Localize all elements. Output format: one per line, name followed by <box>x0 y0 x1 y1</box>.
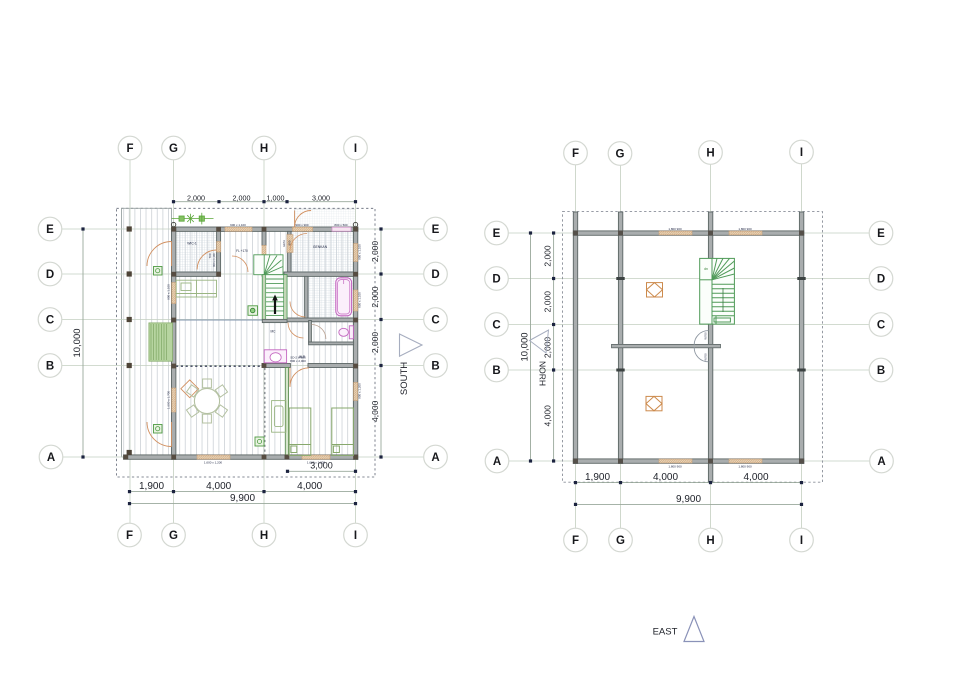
svg-text:2,000: 2,000 <box>233 194 251 203</box>
svg-text:900: 900 <box>287 240 291 245</box>
svg-text:2,000: 2,000 <box>187 194 205 203</box>
svg-text:1,800 900: 1,800 900 <box>668 227 682 231</box>
svg-text:I: I <box>800 147 803 159</box>
svg-text:E: E <box>432 224 440 236</box>
svg-text:I: I <box>354 530 357 542</box>
svg-text:GENKAN: GENKAN <box>313 245 328 249</box>
svg-text:G: G <box>169 143 178 155</box>
svg-text:D: D <box>492 274 500 286</box>
svg-text:4,000: 4,000 <box>653 472 678 483</box>
svg-text:900 x 1,100: 900 x 1,100 <box>212 253 216 267</box>
svg-text:G: G <box>169 530 178 542</box>
svg-text:900 x 1,100: 900 x 1,100 <box>358 244 362 260</box>
svg-text:H: H <box>706 148 714 160</box>
svg-text:1,000: 1,000 <box>267 194 285 203</box>
svg-text:NORH: NORH <box>538 361 548 386</box>
svg-text:C: C <box>431 315 439 327</box>
svg-text:800 x 1,100: 800 x 1,100 <box>358 292 362 308</box>
svg-text:1,600 x 1,700: 1,600 x 1,700 <box>166 391 170 410</box>
svg-text:C: C <box>46 315 54 327</box>
svg-text:EAST: EAST <box>653 627 678 638</box>
svg-text:1,800 900: 1,800 900 <box>738 464 752 468</box>
svg-text:C: C <box>877 320 885 332</box>
svg-text:H: H <box>260 143 268 155</box>
svg-text:FL +170: FL +170 <box>236 249 248 253</box>
svg-text:I: I <box>354 143 357 155</box>
svg-text:MC: MC <box>271 330 277 334</box>
svg-text:E: E <box>46 224 54 236</box>
svg-text:E: E <box>493 228 501 240</box>
svg-text:1,900: 1,900 <box>139 481 164 492</box>
svg-text:F: F <box>572 535 579 547</box>
svg-text:4,000: 4,000 <box>542 405 552 427</box>
svg-text:I: I <box>800 535 803 547</box>
svg-text:3,000: 3,000 <box>312 194 330 203</box>
svg-text:4,000: 4,000 <box>206 481 231 492</box>
svg-text:G: G <box>616 535 625 547</box>
svg-text:F: F <box>126 143 133 155</box>
svg-text:800 x 2,000: 800 x 2,000 <box>290 359 306 363</box>
svg-text:B: B <box>877 365 885 377</box>
svg-text:B: B <box>431 361 439 373</box>
svg-text:1,800 900: 1,800 900 <box>738 227 752 231</box>
svg-text:F: F <box>572 148 579 160</box>
svg-text:A: A <box>431 452 439 464</box>
svg-text:900 x 1,100: 900 x 1,100 <box>230 223 246 227</box>
svg-text:D: D <box>877 274 885 286</box>
svg-text:10,000: 10,000 <box>519 332 530 361</box>
svg-text:1,800 900: 1,800 900 <box>668 464 682 468</box>
svg-text:W760: W760 <box>704 353 708 361</box>
svg-text:C: C <box>492 320 500 332</box>
svg-text:2,000: 2,000 <box>542 291 552 313</box>
svg-text:D: D <box>431 269 439 281</box>
svg-text:1,900: 1,900 <box>585 472 610 483</box>
svg-text:800 x 500: 800 x 500 <box>334 223 348 227</box>
svg-text:2,000: 2,000 <box>370 286 380 308</box>
svg-text:2,000: 2,000 <box>542 245 552 267</box>
svg-text:9,900: 9,900 <box>230 493 255 504</box>
svg-text:A: A <box>493 456 501 468</box>
svg-text:2,000: 2,000 <box>370 241 380 263</box>
svg-text:4,000: 4,000 <box>297 481 322 492</box>
svg-text:B: B <box>492 365 500 377</box>
svg-text:SOUTH: SOUTH <box>399 362 410 395</box>
svg-text:F: F <box>126 530 133 542</box>
svg-text:D: D <box>46 269 54 281</box>
svg-text:900 x 1,100: 900 x 1,100 <box>167 284 171 300</box>
svg-text:10,000: 10,000 <box>72 328 83 357</box>
svg-text:G: G <box>616 149 625 161</box>
svg-text:W760: W760 <box>704 332 708 340</box>
svg-text:3,000: 3,000 <box>310 461 333 471</box>
svg-text:900 x 900: 900 x 900 <box>295 223 309 227</box>
svg-text:E: E <box>877 228 885 240</box>
svg-text:700: 700 <box>208 253 212 258</box>
svg-text:GETA: GETA <box>282 240 286 247</box>
svg-text:9,900: 9,900 <box>676 494 701 505</box>
svg-text:900 x 1,200: 900 x 1,200 <box>358 383 362 399</box>
svg-text:H: H <box>260 530 268 542</box>
svg-text:dn: dn <box>704 267 708 271</box>
svg-text:WIC-1: WIC-1 <box>187 242 197 246</box>
svg-text:4,000: 4,000 <box>370 400 380 422</box>
svg-text:H: H <box>706 535 714 547</box>
svg-text:1,600 x 1,200: 1,600 x 1,200 <box>204 461 223 465</box>
svg-text:B: B <box>46 361 54 373</box>
svg-text:A: A <box>47 452 55 464</box>
svg-text:A: A <box>877 456 885 468</box>
svg-text:SD-2 W800: SD-2 W800 <box>290 356 306 360</box>
svg-text:2,000: 2,000 <box>370 332 380 354</box>
svg-text:4,000: 4,000 <box>743 472 768 483</box>
